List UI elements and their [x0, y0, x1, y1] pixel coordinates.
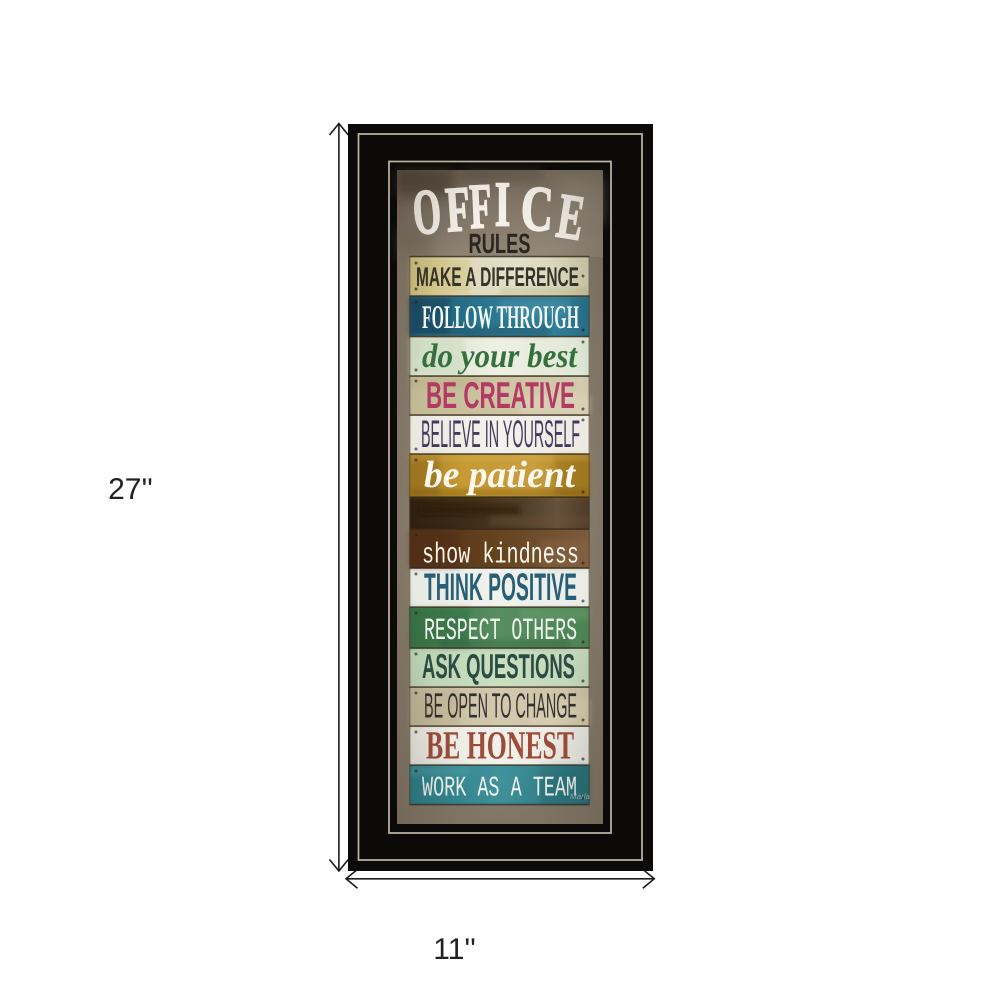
svg-text:27'': 27'' [108, 473, 153, 506]
svg-text:11'': 11'' [433, 933, 476, 966]
